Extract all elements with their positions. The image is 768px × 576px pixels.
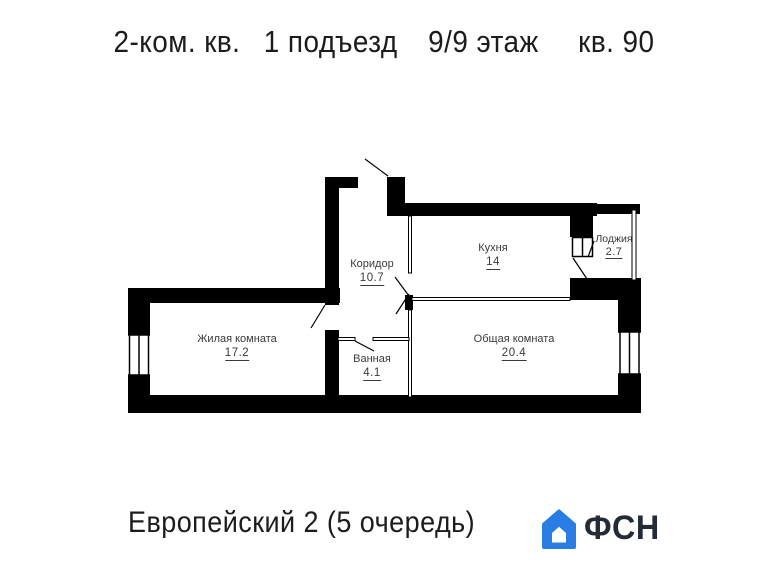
room-name: Общая комната xyxy=(474,333,555,346)
project-name: Европейский 2 (5 очередь) xyxy=(128,506,475,540)
floorplan-page: 2-ком. кв. 1 подъезд 9/9 этаж кв. 90 xyxy=(0,0,768,576)
floor-plan-drawing xyxy=(0,0,768,576)
room-name: Жилая комната xyxy=(197,333,276,346)
room-label-bathroom: Ванная 4.1 xyxy=(353,353,391,381)
window-left-icon xyxy=(128,335,150,375)
room-label-corridor: Коридор 10.7 xyxy=(350,258,393,286)
room-name: Коридор xyxy=(350,258,393,271)
room-label-common: Общая комната 20.4 xyxy=(474,333,555,361)
room-label-kitchen: Кухня 14 xyxy=(478,242,507,270)
room-name: Лоджия xyxy=(595,233,632,245)
fsn-logo: ФСН xyxy=(537,506,664,550)
room-name: Кухня xyxy=(478,242,507,255)
fsn-logo-text: ФСН xyxy=(584,509,660,548)
room-area: 17.2 xyxy=(225,347,249,361)
room-area: 14 xyxy=(486,256,500,270)
room-name: Ванная xyxy=(353,353,391,366)
room-label-living: Жилая комната 17.2 xyxy=(197,333,276,361)
room-area: 10.7 xyxy=(360,272,384,286)
room-area: 4.1 xyxy=(363,367,381,381)
fsn-house-logo-icon xyxy=(537,506,581,550)
window-right-icon xyxy=(618,332,641,374)
room-area: 2.7 xyxy=(606,246,623,259)
room-area: 20.4 xyxy=(502,347,526,361)
room-label-loggia: Лоджия 2.7 xyxy=(595,233,632,259)
